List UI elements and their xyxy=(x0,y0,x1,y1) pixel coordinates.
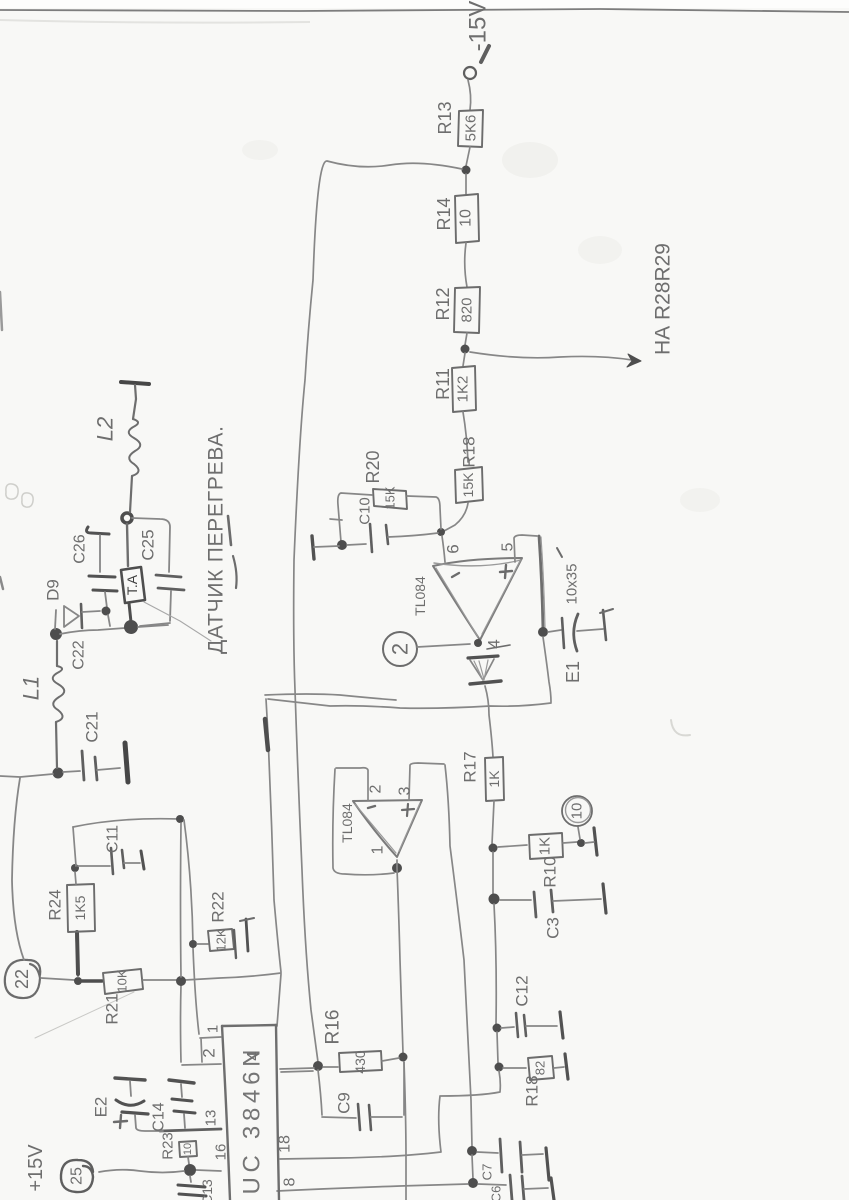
svg-text:R22: R22 xyxy=(209,891,228,922)
svg-text:R13: R13 xyxy=(435,101,455,134)
svg-text:C7: C7 xyxy=(480,1164,495,1181)
svg-text:E2: E2 xyxy=(92,1097,111,1118)
svg-text:ДАТЧИК ПЕРЕГРЕВА.: ДАТЧИК ПЕРЕГРЕВА. xyxy=(205,426,228,654)
svg-text:10: 10 xyxy=(569,803,586,820)
svg-text:C13: C13 xyxy=(199,1179,215,1200)
svg-text:TL084: TL084 xyxy=(339,803,355,843)
svg-text:C3: C3 xyxy=(544,917,563,939)
svg-text:4: 4 xyxy=(244,1051,263,1060)
svg-text:10x35: 10x35 xyxy=(564,564,581,605)
svg-text:TL084: TL084 xyxy=(412,576,428,616)
svg-text:R14: R14 xyxy=(434,197,454,230)
svg-text:C14: C14 xyxy=(151,1102,168,1131)
svg-text:C22: C22 xyxy=(71,640,88,669)
svg-text:8: 8 xyxy=(282,1177,299,1186)
svg-text:5: 5 xyxy=(500,542,517,551)
svg-text:R21: R21 xyxy=(103,993,122,1024)
svg-text:D9: D9 xyxy=(44,579,63,601)
svg-text:R16: R16 xyxy=(323,1010,344,1045)
svg-text:L2: L2 xyxy=(93,417,118,441)
svg-text:22: 22 xyxy=(12,969,32,989)
svg-text:82: 82 xyxy=(533,1061,548,1075)
svg-text:2: 2 xyxy=(200,1048,219,1057)
svg-text:C9: C9 xyxy=(335,1092,354,1114)
svg-text:R20: R20 xyxy=(363,450,383,483)
svg-text:1: 1 xyxy=(205,1025,222,1033)
svg-text:R18: R18 xyxy=(460,436,479,467)
svg-text:C12: C12 xyxy=(513,975,532,1006)
svg-text:E1: E1 xyxy=(563,661,583,683)
svg-text:C11: C11 xyxy=(105,825,122,853)
svg-text:6: 6 xyxy=(444,544,463,553)
svg-text:10: 10 xyxy=(458,209,475,227)
svg-text:2: 2 xyxy=(368,784,385,793)
svg-text:R18: R18 xyxy=(523,1075,542,1106)
svg-text:430: 430 xyxy=(352,1050,368,1074)
svg-text:25: 25 xyxy=(69,1167,86,1185)
svg-text:Т.А: Т.А xyxy=(124,574,140,595)
svg-text:C6: C6 xyxy=(489,1186,504,1200)
svg-text:R23: R23 xyxy=(160,1132,177,1160)
svg-text:C21: C21 xyxy=(83,711,102,742)
svg-text:R10: R10 xyxy=(541,856,560,887)
svg-text:-15V: -15V xyxy=(465,1,492,52)
svg-text:18: 18 xyxy=(277,1135,294,1153)
svg-text:820: 820 xyxy=(459,297,476,322)
svg-text:C25: C25 xyxy=(139,529,158,560)
svg-text:+15V: +15V xyxy=(25,1144,47,1192)
svg-text:13: 13 xyxy=(203,1110,220,1127)
svg-text:1K2: 1K2 xyxy=(455,376,472,403)
svg-text:R11: R11 xyxy=(433,368,453,400)
svg-text:12K: 12K xyxy=(214,928,229,951)
svg-text:R24: R24 xyxy=(46,889,65,920)
svg-text:10K: 10K xyxy=(115,969,130,992)
svg-text:3: 3 xyxy=(397,786,414,795)
svg-text:R12: R12 xyxy=(433,287,453,320)
svg-text:5K6: 5K6 xyxy=(463,115,480,142)
svg-text:C26: C26 xyxy=(72,534,89,563)
svg-text:1K5: 1K5 xyxy=(72,895,88,920)
svg-text:16: 16 xyxy=(213,1144,230,1161)
svg-text:15K: 15K xyxy=(460,472,476,498)
svg-text:1: 1 xyxy=(370,845,387,854)
svg-text:R17: R17 xyxy=(461,751,480,782)
svg-text:10: 10 xyxy=(182,1143,194,1155)
svg-text:15K: 15K xyxy=(383,486,398,509)
svg-text:НА R28R29: НА R28R29 xyxy=(652,243,675,355)
svg-text:2: 2 xyxy=(388,643,413,655)
svg-text:4: 4 xyxy=(485,639,504,648)
svg-text:1K: 1K xyxy=(537,837,554,855)
svg-text:C10: C10 xyxy=(357,497,374,525)
svg-text:1K: 1K xyxy=(486,770,502,788)
svg-text:L1: L1 xyxy=(19,676,44,700)
